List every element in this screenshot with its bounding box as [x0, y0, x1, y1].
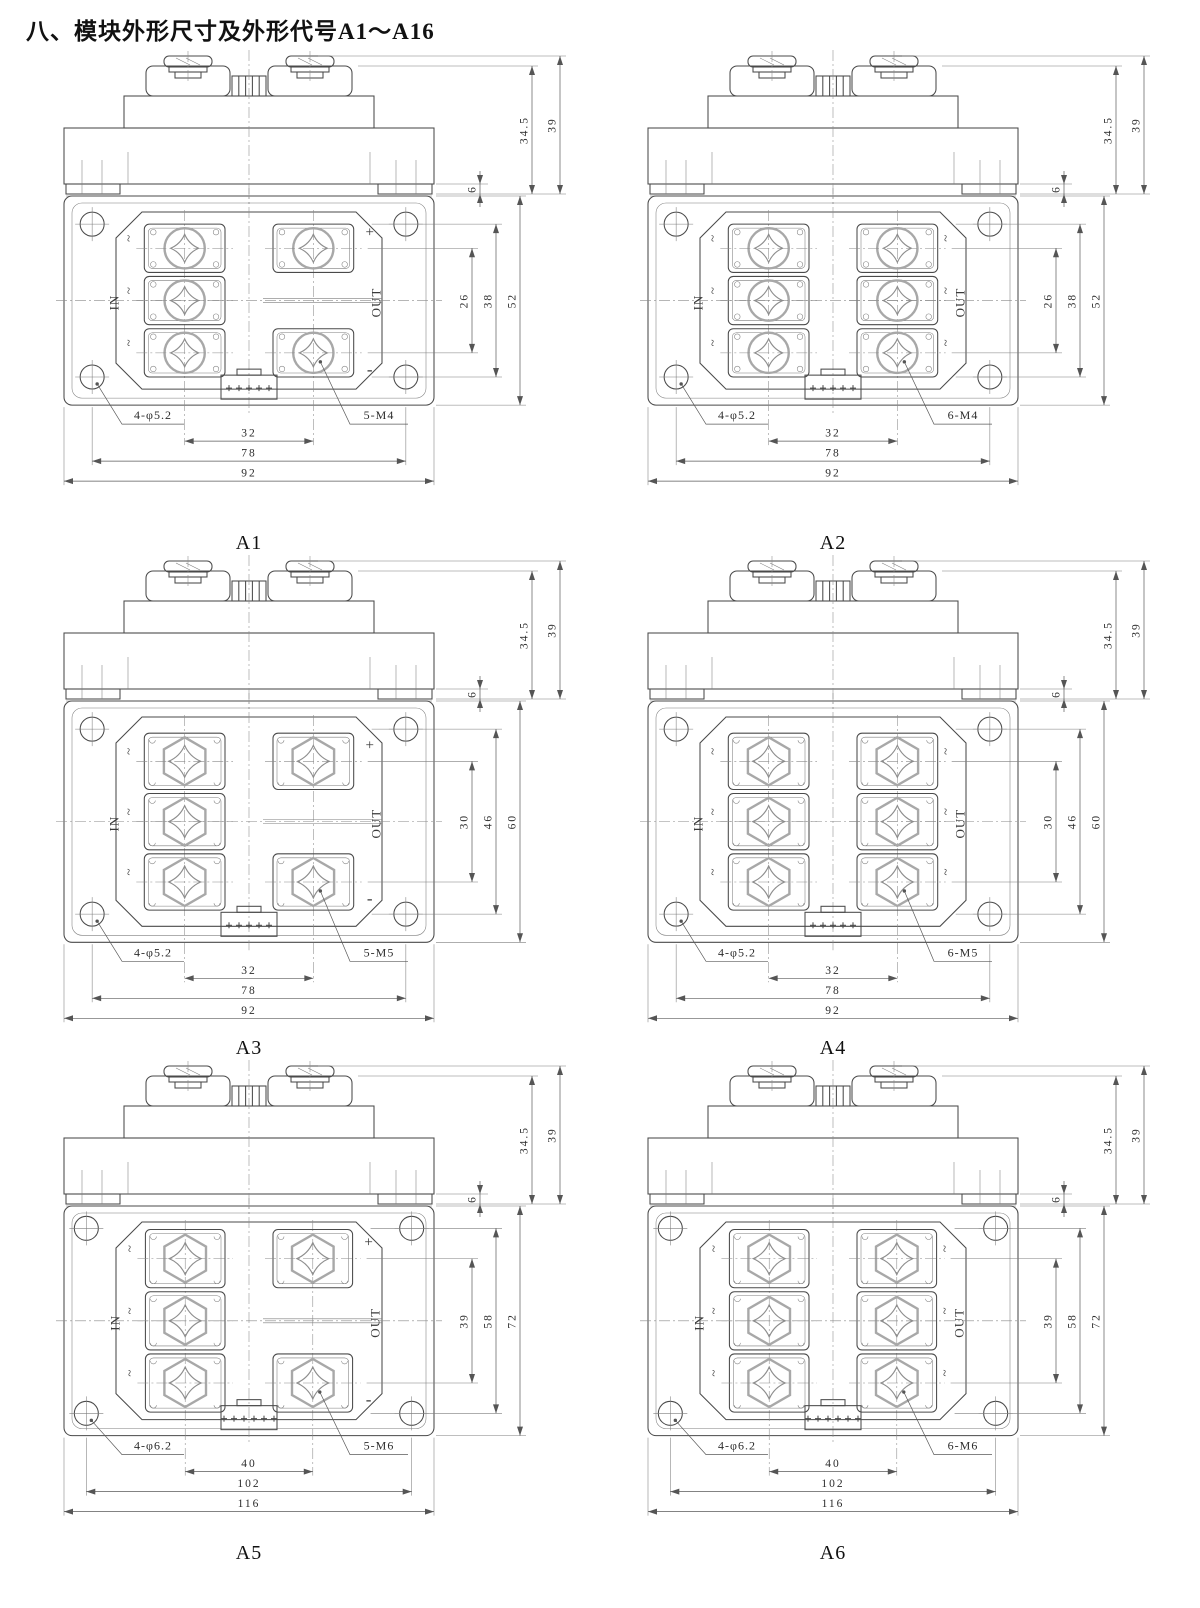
terminal-block [136, 276, 233, 324]
svg-text:34.5: 34.5 [1103, 116, 1115, 144]
plan-dimensions-vertical: 304660 [368, 701, 526, 942]
module-code-a5: A5 [0, 1542, 529, 1565]
svg-text:34.5: 34.5 [519, 1126, 531, 1154]
svg-text:32: 32 [241, 428, 257, 440]
svg-text:58: 58 [483, 1313, 495, 1329]
svg-text:~: ~ [704, 235, 719, 242]
svg-text:~: ~ [120, 235, 135, 242]
svg-text:OUT: OUT [952, 1308, 967, 1338]
module-code-a3: A3 [0, 1037, 529, 1060]
svg-text:39: 39 [1043, 1313, 1055, 1329]
svg-text:78: 78 [241, 448, 257, 460]
svg-text:IN: IN [106, 295, 121, 311]
svg-text:32: 32 [241, 965, 257, 977]
svg-text:~: ~ [937, 1370, 952, 1377]
svg-text:6: 6 [1051, 1195, 1063, 1203]
svg-text:52: 52 [507, 293, 519, 309]
svg-text:92: 92 [241, 468, 257, 480]
svg-text:~: ~ [705, 1307, 720, 1314]
svg-text:40: 40 [825, 1458, 841, 1470]
svg-text:102: 102 [237, 1478, 260, 1490]
svg-text:~: ~ [120, 287, 135, 294]
svg-text:4-φ5.2: 4-φ5.2 [134, 945, 172, 959]
svg-text:39: 39 [1131, 1127, 1143, 1143]
svg-text:78: 78 [825, 448, 841, 460]
svg-text:5-M5: 5-M5 [364, 945, 395, 959]
module-figure-a6: 634.539~~~~~~INOUT395872401021164-φ6.26-… [606, 1060, 1166, 1565]
svg-text:~: ~ [121, 1245, 136, 1252]
svg-text:72: 72 [1091, 1313, 1103, 1329]
svg-text:~: ~ [704, 808, 719, 815]
svg-text:6-M6: 6-M6 [948, 1439, 979, 1453]
svg-text:OUT: OUT [953, 288, 968, 318]
module-code-a6: A6 [553, 1542, 1113, 1565]
side-view: 634.539 [648, 555, 1150, 712]
svg-text:38: 38 [483, 293, 495, 309]
svg-text:6: 6 [1051, 185, 1063, 193]
svg-text:26: 26 [459, 293, 471, 309]
svg-text:78: 78 [241, 985, 257, 997]
mount-hole [659, 712, 693, 746]
svg-text:4-φ5.2: 4-φ5.2 [718, 945, 756, 959]
svg-text:39: 39 [547, 1127, 559, 1143]
top-view: +-~~~INOUT3046603278924-φ5.25-M5 [56, 693, 526, 1022]
svg-text:39: 39 [547, 622, 559, 638]
svg-text:OUT: OUT [368, 1308, 383, 1338]
svg-text:6: 6 [467, 185, 479, 193]
svg-text:78: 78 [825, 985, 841, 997]
svg-text:-: - [367, 889, 373, 908]
svg-text:52: 52 [1091, 293, 1103, 309]
side-view: 634.539 [64, 1060, 566, 1217]
module-figure-a2: 634.539~~~~~~INOUT2638523278924-φ5.26-M4… [606, 50, 1166, 555]
svg-text:OUT: OUT [369, 809, 384, 839]
module-drawing-a1: 634.539+-~~~INOUT2638523278924-φ5.25-M4 [22, 50, 582, 542]
module-figure-a5: 634.539+-~~~INOUT395872401021164-φ6.25-M… [22, 1060, 582, 1565]
mount-hole [75, 360, 109, 394]
svg-text:~: ~ [704, 748, 719, 755]
svg-text:39: 39 [459, 1313, 471, 1329]
svg-text:~: ~ [120, 339, 135, 346]
module-figure-a1: 634.539+-~~~INOUT2638523278924-φ5.25-M4 … [22, 50, 582, 555]
mount-hole [75, 207, 109, 241]
svg-text:4-φ6.2: 4-φ6.2 [134, 1439, 172, 1453]
svg-text:116: 116 [822, 1498, 845, 1510]
svg-text:4-φ5.2: 4-φ5.2 [134, 408, 172, 422]
svg-text:IN: IN [690, 816, 705, 832]
top-view: +-~~~INOUT2638523278924-φ5.25-M4 [56, 188, 526, 485]
side-view: 634.539 [64, 555, 566, 712]
svg-text:39: 39 [1131, 117, 1143, 133]
module-code-a2: A2 [553, 532, 1113, 555]
module-drawing-a3: 634.539+-~~~INOUT3046603278924-φ5.25-M5 [22, 555, 582, 1047]
svg-text:~: ~ [705, 1370, 720, 1377]
svg-text:~: ~ [938, 868, 953, 875]
svg-text:6-M5: 6-M5 [948, 945, 979, 959]
svg-text:58: 58 [1067, 1313, 1079, 1329]
mount-hole [659, 897, 693, 931]
svg-text:60: 60 [507, 814, 519, 830]
svg-text:116: 116 [238, 1498, 261, 1510]
svg-text:IN: IN [690, 295, 705, 311]
top-view: ~~~~~~INOUT3046603278924-φ5.26-M5 [640, 693, 1110, 1022]
side-view: 634.539 [648, 1060, 1150, 1217]
svg-text:40: 40 [241, 1458, 257, 1470]
svg-text:~: ~ [120, 868, 135, 875]
module-figure-a4: 634.539~~~~~~INOUT3046603278924-φ5.26-M5… [606, 555, 1166, 1060]
svg-text:32: 32 [825, 965, 841, 977]
side-view: 634.539 [64, 50, 566, 207]
module-drawing-a6: 634.539~~~~~~INOUT395872401021164-φ6.26-… [606, 1060, 1166, 1552]
terminal-block [720, 276, 817, 324]
svg-text:~: ~ [937, 1307, 952, 1314]
svg-text:+: + [365, 737, 373, 753]
svg-text:IN: IN [106, 816, 121, 832]
svg-text:~: ~ [121, 1370, 136, 1377]
svg-text:4-φ6.2: 4-φ6.2 [718, 1439, 756, 1453]
svg-text:6: 6 [1051, 690, 1063, 698]
svg-text:~: ~ [938, 287, 953, 294]
svg-text:30: 30 [459, 814, 471, 830]
svg-text:34.5: 34.5 [1103, 621, 1115, 649]
svg-text:34.5: 34.5 [1103, 1126, 1115, 1154]
svg-text:34.5: 34.5 [519, 116, 531, 144]
plan-dimensions-vertical: 304660 [952, 701, 1110, 942]
svg-text:4-φ5.2: 4-φ5.2 [718, 408, 756, 422]
svg-text:-: - [366, 1390, 372, 1409]
module-drawing-a2: 634.539~~~~~~INOUT2638523278924-φ5.26-M4 [606, 50, 1166, 542]
svg-text:60: 60 [1091, 814, 1103, 830]
module-drawing-a5: 634.539+-~~~INOUT395872401021164-φ6.25-M… [22, 1060, 582, 1552]
svg-text:32: 32 [825, 428, 841, 440]
module-drawing-a4: 634.539~~~~~~INOUT3046603278924-φ5.26-M5 [606, 555, 1166, 1047]
svg-text:~: ~ [705, 1245, 720, 1252]
svg-text:34.5: 34.5 [519, 621, 531, 649]
svg-text:OUT: OUT [369, 288, 384, 318]
svg-text:~: ~ [938, 808, 953, 815]
svg-text:IN: IN [691, 1315, 706, 1331]
module-code-a1: A1 [0, 532, 529, 555]
svg-text:102: 102 [821, 1478, 844, 1490]
svg-text:~: ~ [937, 1245, 952, 1252]
svg-text:6: 6 [467, 690, 479, 698]
svg-text:92: 92 [825, 468, 841, 480]
svg-text:IN: IN [107, 1315, 122, 1331]
svg-text:5-M4: 5-M4 [364, 408, 395, 422]
svg-text:46: 46 [483, 814, 495, 830]
plan-dimensions-vertical: 395872 [951, 1206, 1110, 1436]
module-code-a4: A4 [553, 1037, 1113, 1060]
svg-text:~: ~ [704, 287, 719, 294]
plan-dimensions-vertical: 395872 [367, 1206, 526, 1436]
svg-text:+: + [364, 1235, 372, 1251]
svg-text:~: ~ [704, 868, 719, 875]
svg-text:~: ~ [121, 1307, 136, 1314]
top-view: ~~~~~~INOUT395872401021164-φ6.26-M6 [640, 1198, 1110, 1516]
mount-hole [659, 360, 693, 394]
svg-text:~: ~ [938, 235, 953, 242]
svg-text:OUT: OUT [953, 809, 968, 839]
top-view: +-~~~INOUT395872401021164-φ6.25-M6 [56, 1198, 526, 1516]
svg-text:30: 30 [1043, 814, 1055, 830]
svg-text:~: ~ [120, 808, 135, 815]
top-view: ~~~~~~INOUT2638523278924-φ5.26-M4 [640, 188, 1110, 485]
svg-text:+: + [365, 224, 373, 240]
plan-dimensions-vertical: 263852 [368, 196, 526, 405]
mount-hole [659, 207, 693, 241]
svg-text:~: ~ [938, 748, 953, 755]
svg-text:6-M4: 6-M4 [948, 408, 979, 422]
svg-text:72: 72 [507, 1313, 519, 1329]
figures-grid: 634.539+-~~~INOUT2638523278924-φ5.25-M4 … [0, 50, 1200, 1565]
mount-hole [75, 712, 109, 746]
module-figure-a3: 634.539+-~~~INOUT3046603278924-φ5.25-M5 … [22, 555, 582, 1060]
svg-text:~: ~ [938, 339, 953, 346]
terminal-block [849, 276, 946, 324]
svg-text:39: 39 [547, 117, 559, 133]
svg-text:~: ~ [120, 748, 135, 755]
datasheet-page: 八、模块外形尺寸及外形代号A1～A16 634.539+-~~~INOUT263… [0, 12, 1200, 1565]
page-title: 八、模块外形尺寸及外形代号A1～A16 [26, 12, 1200, 46]
svg-text:39: 39 [1131, 622, 1143, 638]
svg-text:38: 38 [1067, 293, 1079, 309]
svg-text:92: 92 [825, 1005, 841, 1017]
svg-text:~: ~ [704, 339, 719, 346]
plan-dimensions-vertical: 263852 [952, 196, 1110, 405]
svg-text:26: 26 [1043, 293, 1055, 309]
svg-text:46: 46 [1067, 814, 1079, 830]
svg-text:6: 6 [467, 1195, 479, 1203]
mount-hole [75, 897, 109, 931]
side-view: 634.539 [648, 50, 1150, 207]
svg-text:-: - [367, 360, 373, 379]
svg-text:5-M6: 5-M6 [364, 1439, 395, 1453]
svg-text:92: 92 [241, 1005, 257, 1017]
